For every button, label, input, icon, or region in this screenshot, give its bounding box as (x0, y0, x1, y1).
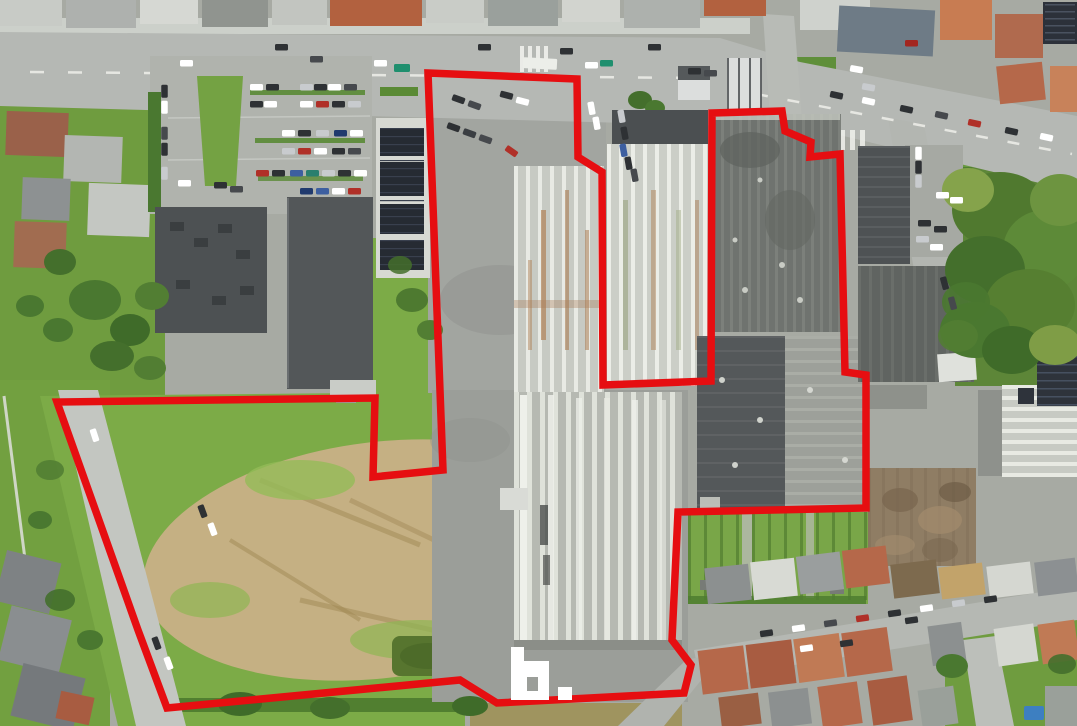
hall-ridges (785, 480, 866, 483)
hall-ridges (858, 196, 910, 198)
hall-ridges (785, 360, 866, 363)
solar-grid (1045, 11, 1075, 13)
car (348, 148, 361, 155)
tree (28, 511, 52, 529)
rust-patch (514, 300, 604, 308)
solar-grid (380, 152, 424, 153)
solar-grid (380, 240, 424, 241)
hall-ridges (858, 186, 910, 188)
skylight (757, 417, 763, 423)
grass-patch (245, 460, 355, 500)
solar-grid (380, 216, 424, 217)
solar-grid (380, 224, 424, 225)
solar-roof (1043, 2, 1077, 44)
car (298, 148, 311, 155)
solar-grid (380, 232, 424, 233)
hall-ridges (592, 392, 597, 648)
house-row-north-tan (938, 562, 986, 599)
car (322, 170, 335, 177)
roof-unit (240, 286, 254, 295)
moss-streak (623, 200, 628, 350)
tree (69, 280, 121, 320)
car (328, 84, 341, 91)
roof-terracotta (996, 62, 1046, 105)
solar-grid (380, 128, 424, 129)
hall-texture (891, 266, 894, 382)
hall-ridges (1002, 451, 1077, 455)
hall-ridges (550, 166, 554, 424)
car (314, 84, 327, 91)
roof-unit (212, 296, 226, 305)
solar-grid (380, 200, 424, 201)
solar-grid (380, 168, 424, 169)
hall-ridges (514, 392, 519, 648)
car (648, 44, 661, 51)
roof-slate-large (837, 6, 935, 57)
hall-ridges (574, 166, 578, 424)
roof-blotch (720, 132, 780, 168)
car (316, 101, 329, 108)
car (178, 180, 191, 187)
car (332, 188, 345, 195)
house-bottom (718, 693, 761, 726)
car (374, 60, 387, 67)
tree (44, 249, 76, 275)
tree (16, 295, 44, 317)
hall-ridges (527, 392, 532, 648)
solar-grid (380, 144, 424, 145)
scene-layers (0, 0, 1077, 726)
skylight (719, 377, 725, 383)
hall-ridges (858, 156, 910, 158)
house-row-north (1034, 558, 1077, 597)
debris (543, 555, 550, 585)
hall-south-band (514, 640, 682, 650)
solar-grid (380, 248, 424, 249)
roof-top-row (562, 0, 620, 22)
car (950, 197, 963, 204)
car (316, 188, 329, 195)
hall-ridges (1002, 418, 1077, 422)
car (332, 101, 345, 108)
grass-wedge (197, 76, 243, 186)
hall-ridges (1002, 462, 1077, 466)
building-ne-white (678, 80, 710, 100)
hall-ridges (858, 176, 910, 178)
hall-ridges (644, 392, 649, 648)
hall-ridges (697, 434, 785, 436)
ruin-hole (922, 538, 958, 562)
skylight (758, 178, 763, 183)
tree-mass (942, 168, 994, 212)
solar-panels (380, 162, 424, 196)
hall-texture (820, 114, 823, 332)
car (314, 148, 327, 155)
car (298, 130, 311, 137)
hall-ridges (785, 348, 866, 351)
roof-top-row (426, 0, 484, 23)
building-framed-white (727, 58, 761, 110)
hall-ridges (785, 492, 866, 495)
car (161, 85, 168, 98)
gray-structure (865, 385, 927, 409)
ridge-strip (576, 398, 582, 644)
house-bottom (1045, 686, 1077, 726)
roof-frame-lines (760, 58, 762, 110)
dark-building-b (287, 197, 373, 389)
tree (396, 288, 428, 312)
car (915, 147, 922, 160)
garden-dividers (688, 512, 691, 600)
car (394, 64, 410, 72)
skylight (842, 457, 848, 463)
gray-structure (978, 390, 1002, 476)
house-bottom (817, 681, 862, 726)
house-left (21, 177, 70, 221)
house-row-south (697, 645, 748, 694)
shed-row (330, 380, 376, 395)
skylight (733, 238, 738, 243)
hall-ridges (1002, 429, 1077, 433)
hall-ridges (785, 432, 866, 435)
hall-ridges (566, 392, 571, 648)
solar-grid (380, 208, 424, 209)
rust-streak (651, 190, 656, 350)
rust-streak (695, 200, 699, 350)
solar-panels (380, 128, 424, 156)
debris (540, 505, 548, 545)
watermark-dot (558, 687, 572, 700)
hall-texture (829, 114, 832, 332)
roof-top-row (272, 0, 327, 25)
car (310, 56, 323, 63)
hall-ridges (1002, 440, 1077, 444)
hall-ridges (785, 444, 866, 447)
hall-texture (902, 266, 905, 382)
hall-ridges (1002, 473, 1077, 477)
hall-ridges (607, 144, 611, 386)
hall-ridges (858, 236, 910, 238)
solar-grid (380, 136, 424, 137)
hall-ridges (697, 462, 785, 464)
car (704, 70, 717, 77)
car (282, 130, 295, 137)
rust-streak (541, 210, 546, 340)
car (334, 130, 347, 137)
car (250, 84, 263, 91)
roof-frame-lines (749, 58, 751, 110)
house-row-north (704, 564, 752, 604)
roof-top-row (624, 0, 700, 28)
roof-unit (236, 250, 250, 259)
car (338, 170, 351, 177)
car (250, 101, 263, 108)
roof-top-row (488, 0, 558, 26)
hall-ridges (697, 392, 785, 394)
solar-grid (380, 184, 424, 185)
car (600, 60, 613, 67)
halls-lower (514, 392, 682, 648)
ridge-strip (604, 398, 610, 644)
tree (310, 697, 350, 719)
roof-unit (176, 280, 190, 289)
hall-ridges (858, 226, 910, 228)
roof-terracotta (1050, 66, 1077, 112)
tree (77, 630, 103, 650)
solar-grid (1037, 404, 1077, 406)
tree (388, 256, 412, 274)
hall-ridges (785, 456, 866, 459)
car (905, 40, 918, 47)
skylight (797, 297, 803, 303)
car (350, 130, 363, 137)
house-bottom (768, 688, 812, 726)
car (936, 192, 949, 199)
hall-ridges (785, 408, 866, 411)
house-row-north (796, 551, 844, 594)
solar-grid (1037, 396, 1077, 398)
parking-hedge (255, 138, 365, 143)
car (344, 84, 357, 91)
solar-grid (1045, 18, 1075, 20)
roof-top-row (202, 0, 268, 27)
grass-patch (170, 582, 250, 618)
car (306, 170, 319, 177)
solar-grid (1037, 372, 1077, 374)
aerial-photo (0, 0, 1077, 726)
car (300, 84, 313, 91)
hedge-column (148, 92, 161, 212)
moss-streak (676, 210, 681, 350)
roof-top-row-terracotta (704, 0, 766, 16)
tree (45, 589, 75, 611)
hall-ridges (858, 256, 910, 258)
hall-ridges (858, 216, 910, 218)
hall-ridges (514, 166, 518, 424)
roof-frame-lines (727, 58, 729, 110)
car (316, 130, 329, 137)
hall-texture (880, 266, 883, 382)
car (161, 101, 168, 114)
tree (1048, 654, 1076, 674)
solar-grid (380, 176, 424, 177)
solar-grid (1037, 388, 1077, 390)
roof-unit (218, 224, 232, 233)
rust-streak (565, 190, 569, 350)
solar-grid (1045, 39, 1075, 41)
car (354, 170, 367, 177)
hall-ridges (785, 384, 866, 387)
car (523, 57, 558, 70)
hall-ridges (858, 206, 910, 208)
parking-hedge (258, 176, 363, 181)
roof-top-row-terracotta (330, 0, 422, 26)
garden-pool (1024, 706, 1044, 720)
ridge-strip (548, 395, 554, 645)
hall-texture (869, 266, 872, 382)
car (272, 170, 285, 177)
ruin-hole (939, 482, 971, 502)
skylight (732, 462, 738, 468)
roof-top-row (66, 0, 136, 28)
ruin-hole (882, 488, 918, 512)
house-row-south (793, 633, 845, 683)
roof-top-row (140, 0, 198, 24)
hall-ridges (785, 420, 866, 423)
car (161, 127, 168, 140)
car (290, 170, 303, 177)
house-row-south (745, 639, 796, 688)
roof-frame-lines (738, 58, 740, 110)
car (180, 60, 193, 67)
parking-hedge (380, 87, 418, 96)
crosswalk (850, 130, 855, 150)
house-left (5, 111, 68, 157)
hall-ridges (618, 392, 623, 648)
solar-grid (1037, 380, 1077, 382)
roof-terracotta (995, 14, 1043, 58)
house-row-north (750, 558, 798, 600)
car (300, 101, 313, 108)
hall-ridges (691, 144, 695, 386)
car (214, 182, 227, 189)
car (915, 161, 922, 174)
hall-texture (913, 266, 916, 382)
solar-grid (1045, 4, 1075, 6)
car (266, 84, 279, 91)
hall-texture (924, 266, 927, 382)
ridge-strip (632, 400, 638, 640)
hall-ridges (785, 336, 866, 339)
house-left-white (87, 183, 151, 237)
roof-top-row (0, 0, 62, 26)
car (332, 148, 345, 155)
ruin-patch (918, 506, 962, 534)
hall-ridges (667, 144, 671, 386)
house-row-south (841, 627, 893, 677)
hall-ridges (858, 146, 910, 148)
house-bottom (918, 686, 959, 726)
car (275, 44, 288, 51)
car (918, 220, 931, 227)
solar-grid (1045, 25, 1075, 27)
roof-terracotta (940, 0, 992, 40)
hall-ridges (785, 396, 866, 399)
hall-ridges (697, 420, 785, 422)
car (161, 167, 168, 180)
tree (43, 318, 73, 342)
house-row-south (994, 623, 1039, 666)
ruin-texture (966, 468, 969, 566)
hall-ridges (858, 246, 910, 248)
hall-ridges (858, 166, 910, 168)
hall-ridges (697, 406, 785, 408)
car (300, 188, 313, 195)
car (161, 143, 168, 156)
car (585, 62, 598, 69)
roof-blotch (765, 190, 815, 250)
solar-grid (380, 160, 424, 161)
car (930, 244, 943, 251)
car (915, 175, 922, 188)
rust-streak (585, 230, 589, 350)
ridge-strip (520, 395, 527, 645)
car (256, 170, 269, 177)
car (348, 188, 361, 195)
hall-texture (858, 266, 861, 382)
car (560, 48, 573, 55)
car (282, 148, 295, 155)
hall-ridges (697, 490, 785, 492)
hall-ridges (643, 144, 647, 386)
tree (452, 696, 488, 716)
house-bottom (867, 675, 913, 725)
white-shed (500, 488, 528, 510)
solar-array (1018, 388, 1034, 404)
hall-ridges (1002, 407, 1077, 411)
hall-ridges (697, 476, 785, 478)
tree (135, 282, 169, 310)
tree (90, 341, 134, 371)
house-row-north (890, 559, 940, 598)
tree (110, 314, 150, 346)
ridge-strip (660, 400, 666, 640)
tree-mass (938, 320, 978, 352)
car (230, 186, 243, 193)
parking-hedge (250, 90, 365, 95)
white-shed (700, 497, 720, 509)
skylight (779, 262, 785, 268)
solar-grid (380, 192, 424, 193)
roof-unit (194, 238, 208, 247)
tree (134, 356, 166, 380)
hall-ridges (697, 448, 785, 450)
car (348, 101, 361, 108)
house-row-north (986, 561, 1034, 598)
hall-texture (935, 266, 938, 382)
car (688, 68, 701, 75)
house-left (63, 135, 123, 183)
car (478, 44, 491, 51)
car (264, 101, 277, 108)
solar-grid (1045, 32, 1075, 34)
roof-unit (170, 222, 184, 231)
tree (36, 460, 64, 480)
car (934, 226, 947, 233)
tree (936, 654, 968, 678)
car (916, 236, 929, 243)
skylight (742, 287, 748, 293)
hall-ridges (619, 144, 623, 386)
house-row-north (842, 545, 890, 588)
hall-ridges (785, 468, 866, 471)
skylight (807, 387, 813, 393)
aerial-site-photo (0, 0, 1077, 726)
